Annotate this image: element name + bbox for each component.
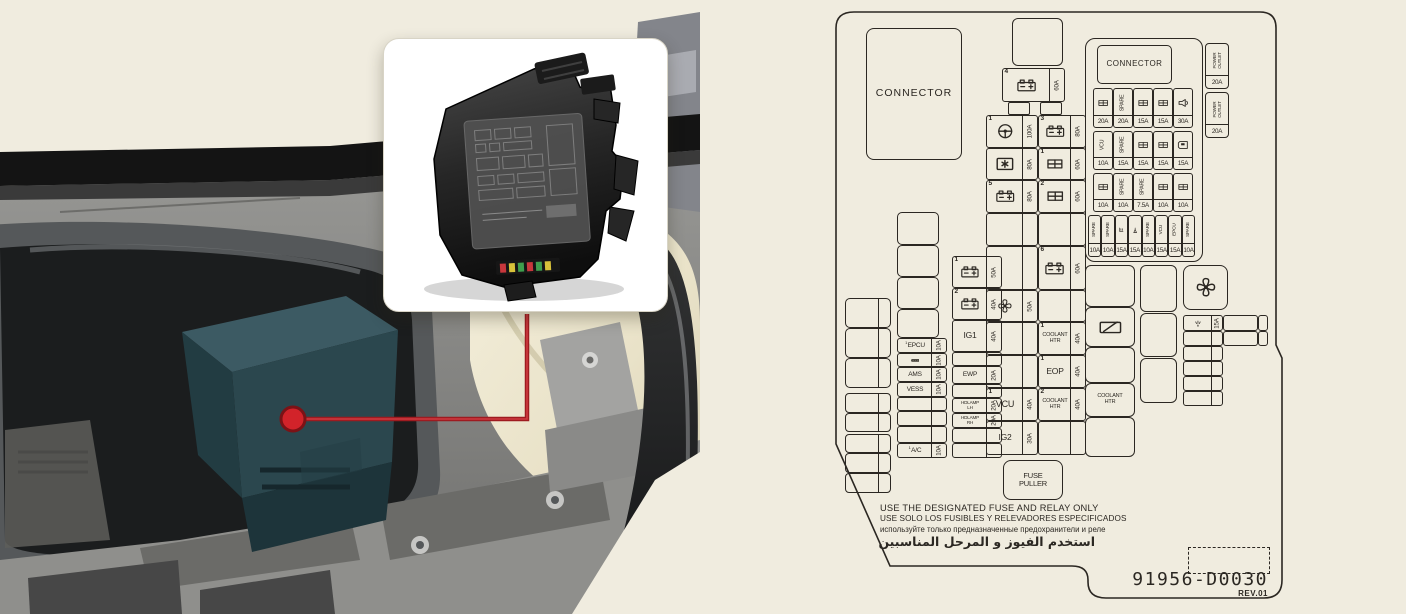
amp-rating: 10A <box>1143 243 1154 256</box>
amp-strip <box>986 353 1001 365</box>
fuse-label: COOLANTHTR <box>1042 399 1067 411</box>
relay-slot <box>1012 18 1063 66</box>
fuse-ieb: 10A <box>897 353 947 367</box>
amp-rating: 60A <box>1074 159 1081 169</box>
amp-strip <box>1022 214 1037 245</box>
fuse-cell: 10ASPARE <box>1113 173 1133 212</box>
fuse-label: IG1 <box>963 331 976 340</box>
amp-rating: 60A <box>1074 191 1081 201</box>
slot <box>1183 331 1223 346</box>
amp-rating: 20A <box>990 370 997 380</box>
slot <box>897 397 947 411</box>
amp-strip <box>1070 422 1085 454</box>
slot <box>1038 213 1086 246</box>
amp-strip: 100A <box>1022 116 1037 147</box>
amp-strip <box>1022 247 1037 289</box>
amp-strip: 40A <box>1070 356 1085 387</box>
amp-strip: 20A <box>986 414 1001 427</box>
relay-slot <box>845 328 891 358</box>
amp-rating: 80A <box>1026 159 1033 169</box>
fuse-cell: 10ASPARE <box>1101 215 1114 257</box>
slot <box>952 352 1002 366</box>
amp-rating: 10A <box>1089 243 1100 256</box>
amp-strip: 40A <box>986 289 1001 319</box>
fuse-ewp: 20AEWP <box>952 366 1002 384</box>
fuse-label: SPARE <box>1120 94 1126 111</box>
amp-rating: 10A <box>935 445 942 455</box>
ebgrid-icon <box>1137 140 1149 150</box>
amp-strip <box>1070 291 1085 321</box>
slot <box>952 428 1002 443</box>
relay-slot <box>1140 265 1177 312</box>
relay-slot <box>1085 347 1135 383</box>
fuse-label: AMS <box>908 371 922 378</box>
fuse-label: SPARE <box>1120 179 1126 196</box>
warning-block: USE THE DESIGNATED FUSE AND RELAY ONLY U… <box>880 503 1095 549</box>
relay-slot <box>845 453 891 473</box>
fuse-cell: 15A <box>1128 215 1141 257</box>
relay-rear-wiper <box>1085 307 1135 347</box>
amp-rating: 15A <box>1169 243 1180 256</box>
amp-strip <box>986 429 1001 442</box>
fuse-label: EOP <box>1046 367 1063 376</box>
amp-strip: 15A <box>1211 316 1222 330</box>
connector-box-left: CONNECTOR <box>866 28 962 160</box>
amp-strip: 30A <box>1022 422 1037 454</box>
amp-rating: 10A <box>1114 199 1132 211</box>
revision-label: REV.01 <box>1180 589 1268 598</box>
amp-strip: 40A <box>1070 323 1085 354</box>
fuse-cell: 10A <box>1173 173 1193 212</box>
manual-page: { "page": {"background": "#f0ecdf", "ink… <box>0 0 1406 614</box>
fuse-ac: 10A1A/C <box>897 443 947 458</box>
fuse-label: VCU <box>1100 140 1106 151</box>
warning-text-ru: используйте только предназначенные предо… <box>880 525 1095 534</box>
relay-slot <box>845 393 891 413</box>
amp-strip: 10A <box>931 383 946 396</box>
amp-rating: 10A <box>1154 199 1172 211</box>
fuse-label: SPARE <box>1186 223 1191 238</box>
relay-slot <box>1140 313 1177 357</box>
door-icon <box>1177 140 1189 150</box>
tab <box>1040 102 1062 115</box>
fuse-cell: 10AVCU <box>1093 131 1113 170</box>
slot <box>1258 331 1268 346</box>
amp-rating: 10A <box>1183 243 1194 256</box>
relay-slot <box>897 277 939 309</box>
fuse-cell: 10ASPARE <box>1088 215 1101 257</box>
amp-strip: 50A <box>986 257 1001 287</box>
fuse-label: VCU <box>1159 225 1164 235</box>
amp-strip: 20A <box>986 399 1001 412</box>
fuse-cell: 10A <box>1093 173 1113 212</box>
amp-strip: 10A <box>931 368 946 381</box>
battery-icon <box>1044 260 1065 277</box>
amp-rating: 50A <box>1026 301 1033 311</box>
amp-strip: 60A <box>1070 247 1085 289</box>
amp-rating: 10A <box>935 369 942 379</box>
fuse-cell: 20A <box>1093 88 1113 128</box>
warning-text-es: USE SOLO LOS FUSIBLES Y RELEVADORES ESPE… <box>880 514 1095 523</box>
amp-rating: 10A <box>935 340 942 350</box>
fuse-3: 80A3 <box>1038 115 1086 148</box>
amp-strip <box>1211 332 1222 345</box>
fuse-label: SPARE <box>1120 137 1126 154</box>
slot <box>897 426 947 443</box>
fuse-label: 1EPCU <box>905 341 925 349</box>
relay-fan <box>1183 265 1228 310</box>
slot <box>1038 290 1086 322</box>
fuse-cell: 15AEPCU <box>1168 215 1181 257</box>
amp-rating: 50A <box>990 267 997 277</box>
ebgrid-icon <box>1177 182 1189 192</box>
fuse-power-outlet-2: 20APOWEROUTLET <box>1205 92 1229 138</box>
fuse-label: EWP <box>963 371 977 378</box>
fuse-eb-1: 60A1 <box>1038 148 1086 180</box>
fuse-eb-2: 60A2 <box>1038 180 1086 213</box>
slot <box>1183 361 1223 376</box>
fuse-label: 1A/C <box>909 446 922 454</box>
slot <box>1258 315 1268 331</box>
fuse-label: SPARE <box>1140 179 1146 196</box>
relay-slot <box>1085 417 1135 457</box>
amp-strip <box>1211 392 1222 405</box>
fuse-hdlamp-rh: 20AHDLAMPRH <box>952 413 1002 428</box>
amp-rating: 15A <box>1134 157 1152 169</box>
fuse-cell: 10A <box>1153 173 1173 212</box>
slot <box>1223 315 1258 331</box>
fuse-bat-1: 50A1 <box>952 256 1002 288</box>
fuse-label: SPARE <box>1146 223 1151 238</box>
amp-rating: 15A <box>1154 115 1172 127</box>
steering-icon <box>995 123 1015 139</box>
amp-strip <box>931 412 946 425</box>
fuse-label: COOLANTHTR <box>1097 394 1122 406</box>
fuse-box-cover-illustration <box>384 39 667 311</box>
ebgrid-icon <box>1097 182 1109 192</box>
amp-strip: 80A <box>1022 181 1037 212</box>
amp-strip <box>1211 377 1222 390</box>
fuse-cell: 15A <box>1173 131 1193 170</box>
amp-strip: 60A <box>1049 69 1064 101</box>
amp-strip: 80A <box>1070 116 1085 147</box>
part-number: 91956-D0030 <box>1060 569 1268 590</box>
fuse-1-steering: 100A1 <box>986 115 1038 148</box>
amp-strip: 10A <box>931 354 946 366</box>
slot <box>1183 376 1223 391</box>
amp-rating: 15A <box>1154 157 1172 169</box>
ebgrid-icon <box>1097 98 1109 108</box>
fuse-label: POWEROUTLET <box>1213 101 1222 118</box>
amp-strip <box>931 398 946 410</box>
fuse-ig1: 40AIG1 <box>952 320 1002 352</box>
fuse-cell: 15A <box>1153 131 1173 170</box>
relay-slot <box>845 413 891 432</box>
callout-dot <box>281 407 305 431</box>
fuse-bat-2: 40A2 <box>952 288 1002 320</box>
amp-rating: 30A <box>1026 433 1033 443</box>
warning-text-en: USE THE DESIGNATED FUSE AND RELAY ONLY <box>880 503 1095 513</box>
fuse-cell: 20ASPARE <box>1113 88 1133 128</box>
seatheat-icon <box>1117 227 1125 234</box>
amp-rating: 10A <box>1094 157 1112 169</box>
slot <box>1183 391 1223 406</box>
battery-icon <box>995 188 1015 204</box>
slot <box>952 384 1002 398</box>
fan-icon <box>1192 276 1220 298</box>
amp-rating: 15A <box>1156 243 1167 256</box>
battery-icon <box>960 264 980 280</box>
slot <box>1038 421 1086 455</box>
ebgrid-icon <box>1137 98 1149 108</box>
fuse-washer: 15A <box>1183 315 1223 331</box>
amp-strip: 10A <box>931 339 946 352</box>
fuse-cell: 15A <box>1153 88 1173 128</box>
relay-slot <box>845 473 891 493</box>
ebgrid-icon <box>1157 182 1169 192</box>
connector-box-top: CONNECTOR <box>1097 45 1172 84</box>
fuse-coolant-htr-1: 40A1COOLANTHTR <box>1038 322 1086 355</box>
ebgrid-icon <box>1157 98 1169 108</box>
fuse-label: CONNECTOR <box>876 88 952 99</box>
battery-icon <box>1016 77 1037 94</box>
fuse-vess: 10AVESS <box>897 382 947 397</box>
amp-strip <box>1022 323 1037 354</box>
washer-icon <box>1193 319 1203 327</box>
spotlight-icon <box>1131 227 1139 234</box>
amp-strip: 50A <box>1022 291 1037 321</box>
ebgrid-icon <box>1045 156 1065 172</box>
slot <box>986 213 1038 246</box>
slot <box>897 411 947 426</box>
amp-strip: 10A <box>931 444 946 457</box>
relay-coolant-htr: COOLANTHTR <box>1085 383 1135 417</box>
amp-strip <box>986 385 1001 397</box>
slot <box>1183 346 1223 361</box>
amp-strip <box>1211 347 1222 360</box>
fuse-label: HDLAMPLH <box>961 401 979 411</box>
amp-strip: 60A <box>1070 181 1085 212</box>
amp-rating: 10A <box>1102 243 1113 256</box>
relay-slot <box>845 298 891 328</box>
relay-slot <box>897 245 939 277</box>
fuse-cell: 15A <box>1133 88 1153 128</box>
ebgrid-icon <box>1045 188 1065 204</box>
amp-rating: 15A <box>1129 243 1140 256</box>
fuse-4: 60A4 <box>1002 68 1065 102</box>
amp-rating: 100A <box>1027 125 1034 139</box>
amp-rating: 20A <box>1206 124 1228 137</box>
fuse-5: 80A5 <box>986 180 1038 213</box>
fuse-label: EPCU <box>1173 224 1178 237</box>
warning-text-ar: استخدم الفيوز و المرحل المناسبين <box>880 534 1095 549</box>
relay-slot <box>845 434 891 453</box>
tab <box>1008 102 1030 115</box>
amp-rating: 10A <box>935 355 942 365</box>
amp-rating: 20A <box>990 415 997 425</box>
cover-label-panel <box>464 113 591 249</box>
fuse-cell: 7.5ASPARE <box>1133 173 1153 212</box>
amp-rating: 40A <box>1074 366 1081 376</box>
fuse-cell: 15A <box>1115 215 1128 257</box>
relay-slot <box>1085 265 1135 307</box>
fuse-eop: 40A1EOP <box>1038 355 1086 388</box>
fuse-puller: FUSEPULLER <box>1003 460 1063 500</box>
amp-strip: 40A <box>1070 389 1085 420</box>
fuse-label: COOLANTHTR <box>1042 333 1067 345</box>
fuse-power-outlet-1: 20APOWEROUTLET <box>1205 43 1229 89</box>
fuse-label: SPARE <box>1106 223 1111 238</box>
fuse-cell: 15AVCU <box>1155 215 1168 257</box>
amp-rating: 40A <box>1074 399 1081 409</box>
amp-rating: 15A <box>1174 157 1192 169</box>
amp-rating: 40A <box>990 331 997 341</box>
amp-rating: 20A <box>1114 115 1132 127</box>
slot <box>1223 331 1258 346</box>
fuse-cell: 15A <box>1133 131 1153 170</box>
amp-strip: 20A <box>986 367 1001 383</box>
inset-card <box>383 38 668 312</box>
amp-rating: 15A <box>1116 243 1127 256</box>
amp-strip <box>1211 362 1222 375</box>
amp-strip: 80A <box>1022 149 1037 179</box>
amp-rating: 7.5A <box>1134 199 1152 211</box>
amp-strip <box>931 427 946 442</box>
amp-rating: 20A <box>1206 75 1228 88</box>
fuse-cell: 10ASPARE <box>1142 215 1155 257</box>
ebgrid-icon <box>1157 140 1169 150</box>
relay-slot <box>845 358 891 388</box>
fuse-module: 80A <box>986 148 1038 180</box>
module-icon <box>995 156 1015 172</box>
fuse-label: FUSEPULLER <box>1019 472 1047 488</box>
relay-slot <box>897 212 939 245</box>
fuse-cell: 15ASPARE <box>1113 131 1133 170</box>
wiper-icon <box>1098 317 1123 337</box>
fuse-coolant-htr-2: 40A2COOLANTHTR <box>1038 388 1086 421</box>
fuse-label: POWEROUTLET <box>1213 52 1222 69</box>
amp-rating: 15A <box>1214 318 1221 328</box>
amp-rating: 40A <box>1074 333 1081 343</box>
amp-strip: 40A <box>986 321 1001 351</box>
fuse-label: SPARE <box>1092 223 1097 238</box>
amp-strip: 60A <box>1070 149 1085 179</box>
amp-rating: 80A <box>1026 191 1033 201</box>
fuse-6: 60A6 <box>1038 246 1086 290</box>
amp-rating: 10A <box>1094 199 1112 211</box>
amp-rating: 15A <box>1134 115 1152 127</box>
fuse-label: HDLAMPRH <box>961 416 979 426</box>
amp-rating: 40A <box>1026 399 1033 409</box>
amp-rating: 40A <box>990 299 997 309</box>
fuse-cell: 10ASPARE <box>1182 215 1195 257</box>
fuse-label: VESS <box>907 386 924 393</box>
amp-strip <box>1022 356 1037 387</box>
battery-icon <box>960 296 980 312</box>
fuse-epcu: 10A1EPCU <box>897 338 947 353</box>
amp-rating: 60A <box>1053 80 1060 90</box>
relay-slot <box>897 309 939 338</box>
amp-strip: 40A <box>1022 389 1037 420</box>
amp-strip <box>986 444 1001 457</box>
amp-rating: 20A <box>990 400 997 410</box>
amp-rating: 30A <box>1174 115 1192 127</box>
amp-rating: 20A <box>1094 115 1112 127</box>
fuse-cell: 30A <box>1173 88 1193 128</box>
fuse-ams: 10AAMS <box>897 367 947 382</box>
relay-slot <box>1140 358 1177 403</box>
amp-rating: 80A <box>1074 126 1081 136</box>
slot <box>952 443 1002 458</box>
fuse-label: CONNECTOR <box>1107 60 1163 69</box>
amp-rating: 60A <box>1074 263 1081 273</box>
amp-rating: 15A <box>1114 157 1132 169</box>
darklabel-icon <box>911 357 920 364</box>
amp-rating: 10A <box>935 384 942 394</box>
horn-icon <box>1177 98 1189 108</box>
amp-strip <box>1070 214 1085 245</box>
amp-rating: 10A <box>1174 199 1192 211</box>
fuse-hdlamp-lh: 20AHDLAMPLH <box>952 398 1002 413</box>
battery-icon <box>1045 123 1065 139</box>
